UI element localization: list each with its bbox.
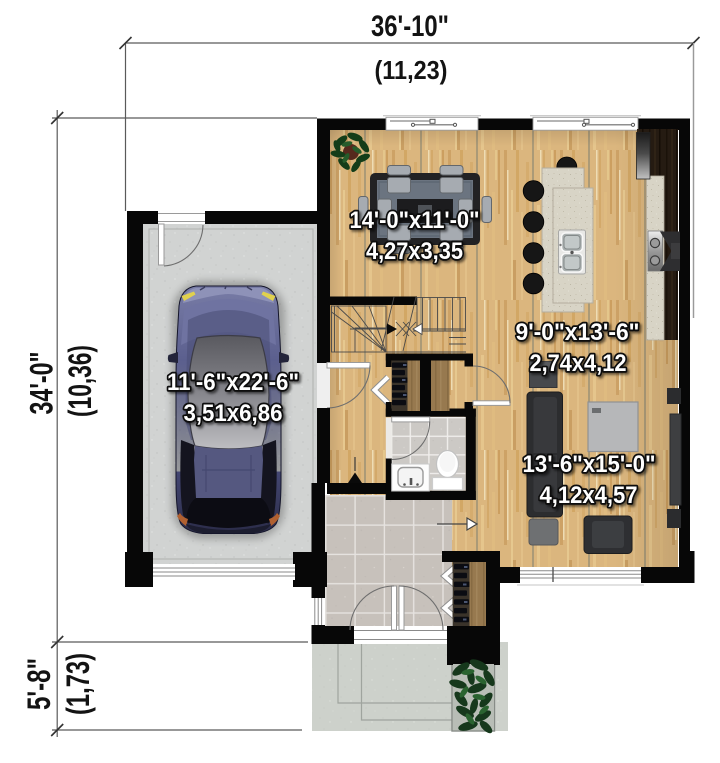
svg-text:36'-10": 36'-10": [371, 10, 449, 43]
svg-text:4,12x4,57: 4,12x4,57: [540, 482, 638, 509]
svg-text:(10,36): (10,36): [62, 345, 98, 417]
svg-text:2,74x4,12: 2,74x4,12: [530, 350, 627, 377]
svg-text:14'-0"x11'-0": 14'-0"x11'-0": [350, 207, 480, 234]
svg-text:9'-0"x13'-6": 9'-0"x13'-6": [516, 319, 640, 346]
svg-text:13'-6"x15'-0": 13'-6"x15'-0": [523, 451, 656, 478]
svg-text:4,27x3,35: 4,27x3,35: [366, 238, 463, 265]
svg-text:11'-6"x22'-6": 11'-6"x22'-6": [167, 369, 299, 396]
svg-text:34'-0": 34'-0": [23, 352, 59, 415]
svg-text:3,51x6,86: 3,51x6,86: [184, 400, 283, 427]
svg-text:(1,73): (1,73): [60, 653, 96, 715]
svg-text:5'-8": 5'-8": [21, 658, 57, 710]
svg-text:(11,23): (11,23): [375, 55, 448, 85]
